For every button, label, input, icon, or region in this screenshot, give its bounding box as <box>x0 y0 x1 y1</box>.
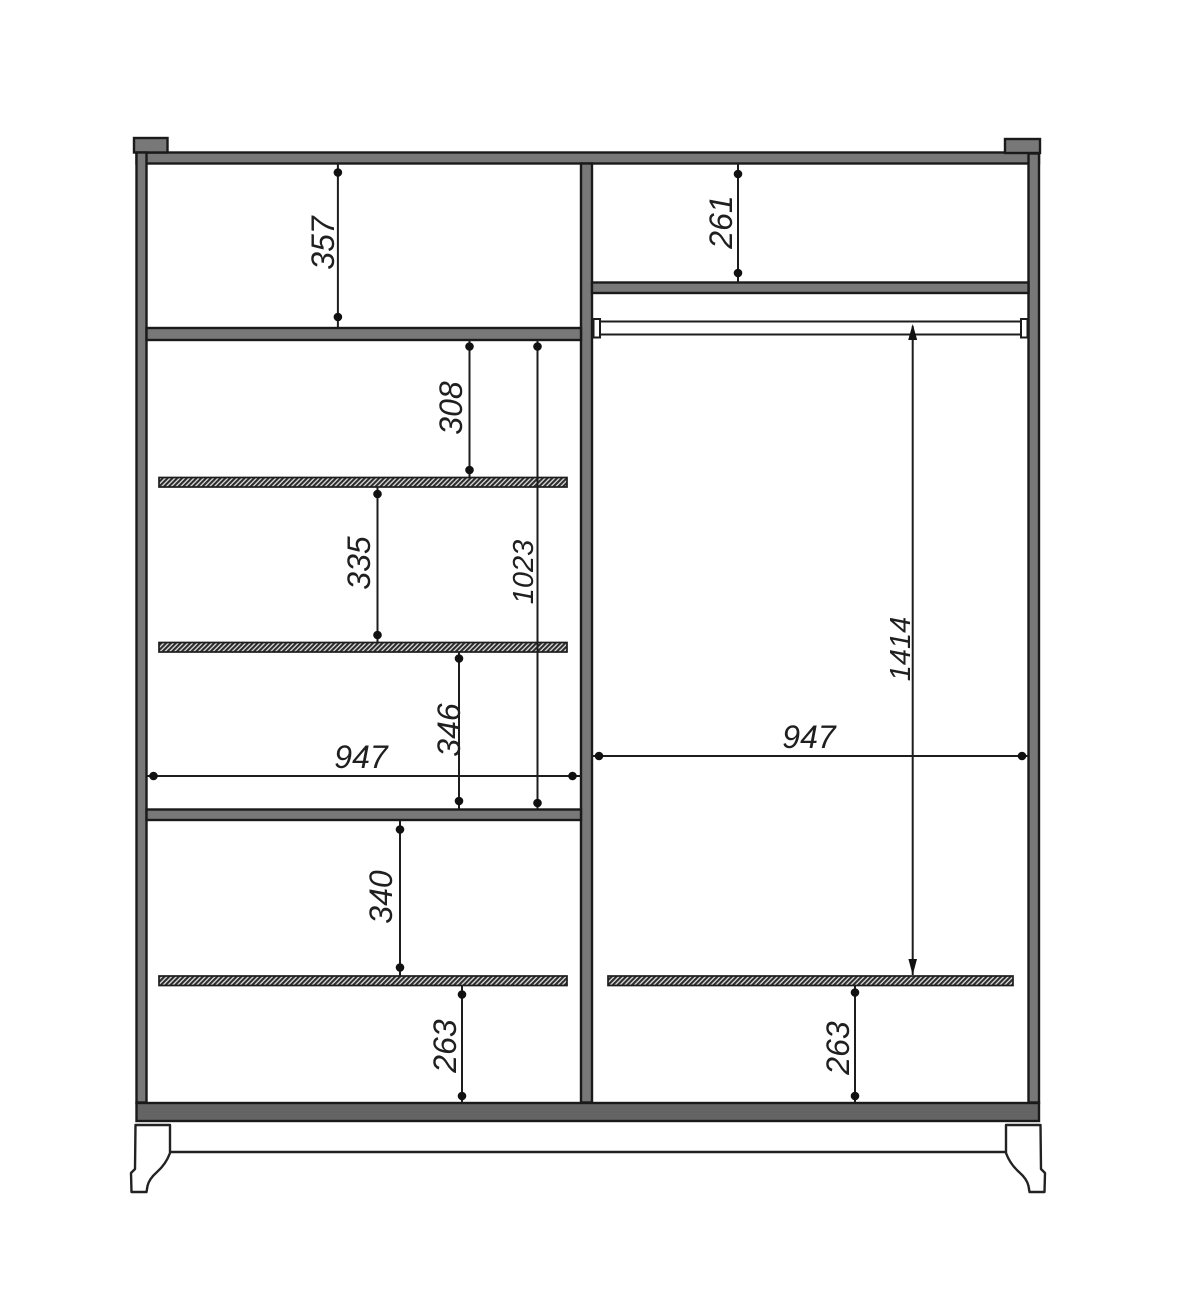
svg-text:1023: 1023 <box>508 540 540 605</box>
svg-text:261: 261 <box>703 195 739 249</box>
svg-text:947: 947 <box>782 719 837 755</box>
svg-text:346: 346 <box>431 703 467 757</box>
svg-text:335: 335 <box>341 536 377 590</box>
svg-text:308: 308 <box>433 381 469 435</box>
svg-text:357: 357 <box>305 215 341 270</box>
svg-text:1414: 1414 <box>885 617 917 682</box>
svg-text:263: 263 <box>427 1019 463 1074</box>
svg-text:947: 947 <box>334 739 389 775</box>
svg-text:340: 340 <box>363 870 399 924</box>
svg-text:263: 263 <box>820 1021 856 1076</box>
